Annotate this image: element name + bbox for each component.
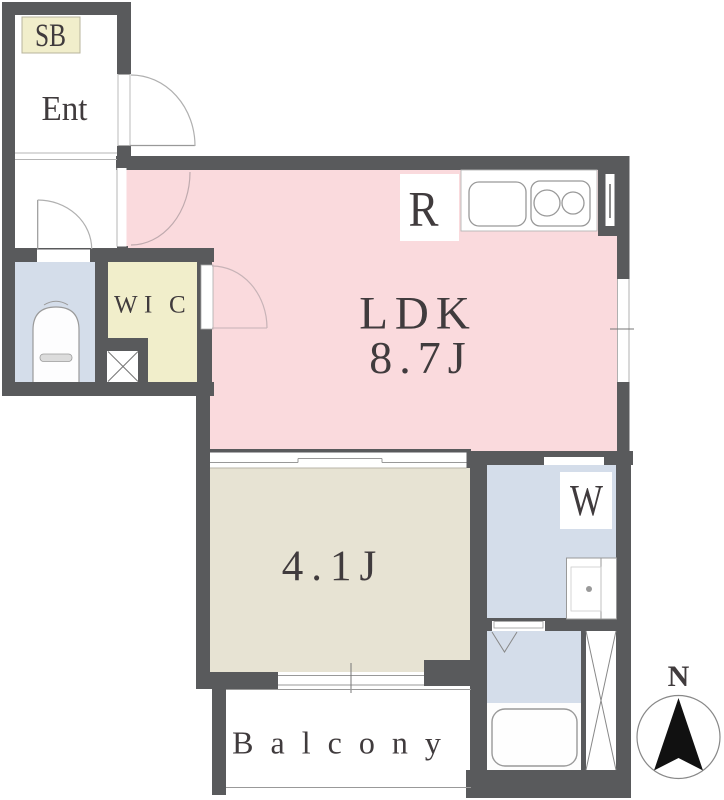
svg-text:Balcony: Balcony: [232, 725, 458, 761]
svg-text:Ent: Ent: [42, 89, 88, 128]
svg-text:R: R: [409, 181, 440, 237]
svg-text:I: I: [144, 292, 152, 319]
svg-text:W: W: [114, 292, 138, 319]
svg-text:W: W: [570, 476, 603, 525]
svg-text:SB: SB: [35, 18, 66, 54]
svg-text:8.7J: 8.7J: [369, 332, 472, 383]
svg-text:4.1J: 4.1J: [282, 543, 384, 590]
svg-text:N: N: [668, 660, 690, 693]
svg-text:C: C: [169, 292, 186, 319]
